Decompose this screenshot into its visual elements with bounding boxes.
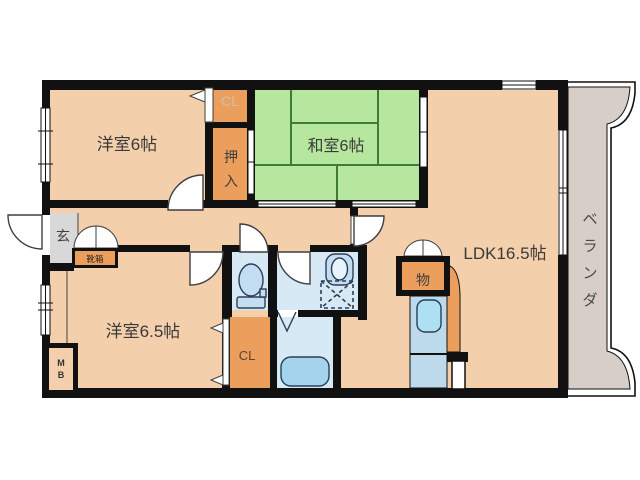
label-meter-box-b: B (58, 370, 65, 380)
kitchen-sink-icon (417, 300, 441, 332)
label-veranda-2: ラ (582, 238, 597, 255)
room-label-western65: 洋室6.5帖 (106, 322, 181, 341)
label-shoebox: 靴箱 (86, 254, 104, 264)
room-label-ldk: LDK16.5帖 (463, 244, 546, 263)
label-closet-bottom: CL (239, 348, 256, 363)
veranda-deck (568, 87, 630, 389)
label-storage: 物 (416, 272, 430, 288)
floorplan-drawing: 洋室6帖 和室6帖 LDK16.5帖 洋室6.5帖 CL 押 入 CL 物 靴箱… (0, 0, 640, 480)
label-veranda-3: ン (582, 265, 597, 282)
label-genkan: 玄 (56, 228, 70, 244)
bathtub-icon (281, 357, 329, 386)
meter-box (44, 343, 78, 395)
label-veranda-4: ダ (582, 292, 597, 309)
floorplan-canvas: 洋室6帖 和室6帖 LDK16.5帖 洋室6.5帖 CL 押 入 CL 物 靴箱… (0, 0, 640, 480)
label-veranda-1: ベ (582, 211, 597, 228)
label-oshiire-1: 押 (224, 149, 238, 165)
fusuma-japanese-room-east (420, 97, 427, 167)
kitchen-open-door-leaf (452, 361, 465, 389)
window-top-ldk (502, 81, 536, 89)
fusuma-oshiire (248, 130, 254, 194)
closet-bottom-door (223, 319, 229, 385)
entrance-door-arc (8, 215, 42, 249)
veranda-area (568, 82, 635, 396)
label-closet-top: CL (221, 93, 239, 109)
label-meter-box-m: M (57, 358, 65, 368)
room-label-western6: 洋室6帖 (97, 135, 157, 154)
label-oshiire-2: 入 (224, 173, 238, 189)
room-label-japanese6: 和室6帖 (308, 137, 365, 155)
sliding-door-ldk-veranda (559, 130, 567, 255)
closet-top-door (205, 88, 213, 122)
